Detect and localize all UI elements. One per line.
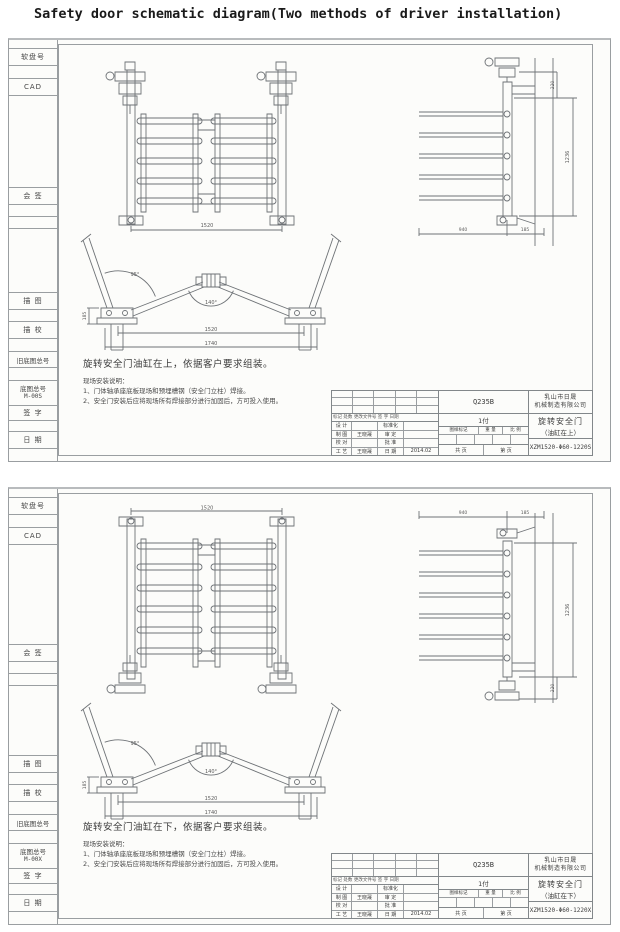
embedded-channel bbox=[535, 513, 553, 703]
bearing-block-right bbox=[285, 308, 325, 324]
note-line: 1、门体轴承座底板现场和预埋槽钢（安全门立柱）焊接。 bbox=[83, 387, 363, 397]
total-pages-label: 共 页 bbox=[439, 445, 484, 455]
dimension-open-width1: 1520 bbox=[118, 795, 304, 805]
base-no-value: M-00S bbox=[24, 393, 42, 401]
sidebar-label-trace: 描 图 bbox=[9, 293, 57, 310]
sidebar-label-trace: 描 图 bbox=[9, 756, 57, 773]
role-date-value: 2014.02 bbox=[404, 448, 438, 456]
dim-side-bottom2: 185 bbox=[521, 510, 530, 516]
dim-side-bottom1: 940 bbox=[459, 510, 468, 516]
stamp-header: 图样标记 重 量 比 例 bbox=[439, 427, 528, 435]
center-latch-blocks bbox=[198, 120, 215, 204]
dimension-side-bottom: 940 185 bbox=[419, 220, 544, 236]
role-draft: 制 图 bbox=[332, 894, 352, 903]
role-check: 校 对 bbox=[332, 439, 352, 448]
front-view-drivers-bottom: 1520 bbox=[89, 505, 324, 700]
sidebar-cell bbox=[9, 368, 57, 381]
sidebar-cell bbox=[9, 773, 57, 785]
dim-side-bottom1: 940 bbox=[459, 227, 468, 233]
quantity-cell: 1付 bbox=[439, 877, 528, 890]
side-view-driver-bottom: 940 185 bbox=[417, 503, 582, 708]
sidebar-cell bbox=[9, 489, 57, 498]
sidebar-cell bbox=[9, 884, 57, 895]
drawing-sheet-cylinder-top: 软盘号 CAD 会 签 描 图 描 校 旧底图总号 底图总号 M-00S 签 字… bbox=[8, 38, 611, 462]
gate-posts bbox=[127, 70, 286, 224]
sidebar-cell bbox=[9, 686, 57, 756]
driver-assembly-right bbox=[258, 655, 296, 693]
revision-grid bbox=[332, 854, 438, 877]
note-title: 旋转安全门油缸在上，依据客户要求组装。 bbox=[83, 356, 363, 370]
dimension-open-height: 185 bbox=[82, 777, 99, 793]
company-line1: 乳山市日晟 bbox=[544, 394, 577, 402]
role-review: 审 定 bbox=[378, 431, 404, 440]
sidebar-label-sign: 签 字 bbox=[9, 406, 57, 421]
sidebar-label-trace-check: 描 校 bbox=[9, 322, 57, 339]
dim-open-width1: 1520 bbox=[205, 327, 218, 333]
sidebar-label-countersign: 会 签 bbox=[9, 188, 57, 205]
dim-front-width: 1520 bbox=[201, 506, 214, 512]
sidebar-cell bbox=[9, 339, 57, 352]
base-no-value: M-00X bbox=[24, 856, 42, 864]
role-date-value: 2014.02 bbox=[404, 911, 438, 919]
gate-panel-right bbox=[211, 539, 276, 667]
dimension-open-width1: 1520 bbox=[118, 326, 304, 336]
center-hub bbox=[196, 274, 226, 287]
role-design: 设 计 bbox=[332, 885, 352, 894]
page-title: Safety door schematic diagram(Two method… bbox=[34, 6, 562, 22]
role-process: 工 艺 bbox=[332, 448, 352, 456]
role-standardization: 标准化 bbox=[378, 422, 404, 431]
top-bearing-side bbox=[497, 527, 535, 538]
company-line1: 乳山市日晟 bbox=[544, 857, 577, 865]
title-block-left: 标记 处数 更改文件号 签 字 日期 设 计 标准化 制 图 王晓晟 审 定 校… bbox=[332, 854, 439, 918]
sidebar-cell bbox=[9, 40, 57, 49]
product-line2: （油缸在下） bbox=[541, 890, 580, 900]
role-draft: 制 图 bbox=[332, 431, 352, 440]
total-pages-label: 共 页 bbox=[439, 908, 484, 918]
role-cell bbox=[404, 422, 438, 431]
dimension-front-width: 1520 bbox=[131, 506, 282, 516]
sidebar-cell bbox=[9, 310, 57, 322]
sidebar-cell bbox=[9, 674, 57, 686]
angle-center-label: 140° bbox=[205, 769, 218, 775]
role-cell bbox=[352, 422, 378, 431]
sidebar-label-date: 日 期 bbox=[9, 895, 57, 912]
dim-side-height: 1236 bbox=[565, 604, 571, 617]
sidebar-label-old-base-no: 旧底图总号 bbox=[9, 815, 57, 831]
role-process-name: 王晓晟 bbox=[352, 448, 378, 456]
title-block-middle: Q235B 1付 图样标记 重 量 比 例 共 页 第 页 bbox=[439, 854, 529, 918]
bottom-bearing-side bbox=[497, 216, 535, 225]
bar-stubs bbox=[419, 111, 510, 201]
stamp-label: 图样标记 bbox=[439, 890, 479, 897]
stamp-area: 图样标记 重 量 比 例 bbox=[439, 427, 528, 445]
role-approve: 批 准 bbox=[378, 439, 404, 448]
pages-row: 共 页 第 页 bbox=[439, 445, 528, 455]
role-check: 校 对 bbox=[332, 902, 352, 911]
stamp-boxes bbox=[439, 435, 528, 444]
sidebar-cell bbox=[9, 205, 57, 217]
dim-open-height: 185 bbox=[82, 781, 88, 790]
driver-assembly-right bbox=[257, 62, 296, 114]
dimension-side-bottom-offset: 220 bbox=[519, 677, 557, 699]
stamp-header: 图样标记 重 量 比 例 bbox=[439, 890, 528, 898]
revision-header: 标记 处数 更改文件号 签 字 日期 bbox=[332, 414, 438, 422]
product-line1: 旋转安全门 bbox=[538, 879, 583, 890]
sidebar-cell bbox=[9, 449, 57, 461]
dimension-open-height: 185 bbox=[82, 308, 99, 324]
title-block-left: 标记 处数 更改文件号 签 字 日期 设 计 标准化 制 图 王晓晟 审 定 校… bbox=[332, 391, 439, 455]
scale-label: 比 例 bbox=[503, 427, 528, 434]
sidebar-label-old-base-no: 旧底图总号 bbox=[9, 352, 57, 368]
product-line1: 旋转安全门 bbox=[538, 416, 583, 427]
base-no-label: 底图总号 bbox=[20, 848, 46, 857]
quantity-cell: 1付 bbox=[439, 414, 528, 427]
company-name: 乳山市日晟 机械制造有限公司 bbox=[529, 391, 592, 414]
role-standardization: 标准化 bbox=[378, 885, 404, 894]
note-line: 2、安全门安装后应将现场所有焊接部分进行加固后，方可投入使用。 bbox=[83, 397, 363, 407]
dim-side-height: 1236 bbox=[565, 151, 571, 164]
driver-assembly-left bbox=[106, 62, 145, 114]
note-title: 旋转安全门油缸在下，依据客户要求组装。 bbox=[83, 819, 363, 833]
sidebar-cell bbox=[9, 229, 57, 293]
post-side bbox=[503, 82, 535, 216]
role-design: 设 计 bbox=[332, 422, 352, 431]
sidebar-label-trace-check: 描 校 bbox=[9, 785, 57, 802]
role-cell bbox=[404, 902, 438, 911]
dim-side-top: 220 bbox=[550, 81, 556, 90]
role-cell bbox=[404, 894, 438, 903]
scale-label: 比 例 bbox=[503, 890, 528, 897]
drawing-number: XZM1520-Φ60-1220S bbox=[529, 439, 592, 455]
gate-panel-right bbox=[211, 114, 276, 212]
post-side bbox=[503, 541, 535, 677]
role-review: 审 定 bbox=[378, 894, 404, 903]
dim-side-top: 220 bbox=[550, 684, 556, 693]
bearing-block-left bbox=[97, 308, 137, 324]
stamp-label: 图样标记 bbox=[439, 427, 479, 434]
dim-front-width: 1520 bbox=[201, 223, 214, 229]
sidebar-cell bbox=[9, 662, 57, 674]
driver-assembly-side bbox=[485, 58, 519, 82]
dimension-side-height: 1236 bbox=[514, 98, 577, 216]
role-draft-name: 王晓晟 bbox=[352, 894, 378, 903]
dimension-side-height: 1236 bbox=[514, 543, 577, 677]
role-date: 日 期 bbox=[378, 448, 404, 456]
role-draft-name: 王晓晟 bbox=[352, 431, 378, 440]
sidebar-base-no: 底图总号 M-00X bbox=[9, 844, 57, 869]
pages-row: 共 页 第 页 bbox=[439, 908, 528, 918]
role-date: 日 期 bbox=[378, 911, 404, 919]
center-latch-blocks bbox=[198, 545, 215, 661]
sidebar-cell bbox=[9, 515, 57, 528]
weight-label: 重 量 bbox=[479, 890, 503, 897]
sidebar-cell bbox=[9, 421, 57, 432]
sidebar-cell bbox=[9, 217, 57, 229]
product-line2: （油缸在上） bbox=[541, 427, 580, 437]
angle-open-label: 95° bbox=[131, 272, 140, 278]
title-block-middle: Q235B 1付 图样标记 重 量 比 例 共 页 第 页 bbox=[439, 391, 529, 455]
role-cell bbox=[352, 439, 378, 448]
sidebar-label-disk-no: 软盘号 bbox=[9, 498, 57, 515]
center-hub bbox=[196, 743, 226, 756]
assembly-notes: 旋转安全门油缸在下，依据客户要求组装。 现场安装说明： 1、门体轴承座底板现场和… bbox=[83, 819, 363, 870]
company-name: 乳山市日晟 机械制造有限公司 bbox=[529, 854, 592, 877]
sidebar: 软盘号 CAD 会 签 描 图 描 校 旧底图总号 底图总号 M-00X 签 字… bbox=[9, 489, 58, 924]
drawing-sheet-cylinder-bottom: 软盘号 CAD 会 签 描 图 描 校 旧底图总号 底图总号 M-00X 签 字… bbox=[8, 487, 611, 925]
title-block: 标记 处数 更改文件号 签 字 日期 设 计 标准化 制 图 王晓晟 审 定 校… bbox=[331, 390, 593, 456]
material-cell: Q235B bbox=[439, 391, 528, 414]
note-heading: 现场安装说明： bbox=[83, 375, 363, 385]
title-block-right: 乳山市日晟 机械制造有限公司 旋转安全门 （油缸在下） XZM1520-Φ60-… bbox=[529, 854, 592, 918]
angle-center-label: 140° bbox=[205, 300, 218, 306]
front-view-drivers-top: 1520 bbox=[89, 54, 324, 234]
gate-panel-left bbox=[137, 114, 202, 212]
stamp-area: 图样标记 重 量 比 例 bbox=[439, 890, 528, 908]
title-block-right: 乳山市日晟 机械制造有限公司 旋转安全门 （油缸在上） XZM1520-Φ60-… bbox=[529, 391, 592, 455]
material-cell: Q235B bbox=[439, 854, 528, 877]
roles-grid: 设 计 标准化 制 图 王晓晟 审 定 校 对 批 准 工 艺 王晓晟 日 期 … bbox=[332, 422, 438, 455]
bearing-block-left bbox=[97, 777, 137, 793]
note-heading: 现场安装说明： bbox=[83, 838, 363, 848]
bearing-block-right bbox=[285, 777, 325, 793]
revision-header: 标记 处数 更改文件号 签 字 日期 bbox=[332, 877, 438, 885]
sidebar-cell bbox=[9, 802, 57, 815]
angle-open-label: 95° bbox=[131, 741, 140, 747]
sidebar-cell bbox=[9, 912, 57, 924]
revision-grid bbox=[332, 391, 438, 414]
sidebar-label-cad: CAD bbox=[9, 79, 57, 96]
sidebar: 软盘号 CAD 会 签 描 图 描 校 旧底图总号 底图总号 M-00S 签 字… bbox=[9, 40, 58, 461]
driver-assembly-side bbox=[485, 677, 519, 700]
base-no-label: 底图总号 bbox=[20, 385, 46, 394]
sidebar-label-sign: 签 字 bbox=[9, 869, 57, 884]
sidebar-base-no: 底图总号 M-00S bbox=[9, 381, 57, 406]
assembly-notes: 旋转安全门油缸在上，依据客户要求组装。 现场安装说明： 1、门体轴承座底板现场和… bbox=[83, 356, 363, 407]
dim-open-width2: 1740 bbox=[205, 810, 218, 816]
page-no-label: 第 页 bbox=[484, 445, 528, 455]
dim-side-bottom2: 185 bbox=[521, 227, 530, 233]
gate-panel-left bbox=[137, 539, 202, 667]
title-block: 标记 处数 更改文件号 签 字 日期 设 计 标准化 制 图 王晓晟 审 定 校… bbox=[331, 853, 593, 919]
note-line: 2、安全门安装后应将现场所有焊接部分进行加固后，方可投入使用。 bbox=[83, 860, 363, 870]
dim-open-width1: 1520 bbox=[205, 796, 218, 802]
role-cell bbox=[404, 885, 438, 894]
top-bearing-blocks bbox=[119, 517, 294, 526]
sidebar-cell bbox=[9, 96, 57, 188]
company-line2: 机械制造有限公司 bbox=[534, 865, 586, 873]
roles-grid: 设 计 标准化 制 图 王晓晟 审 定 校 对 批 准 工 艺 王晓晟 日 期 … bbox=[332, 885, 438, 918]
driver-assembly-left bbox=[107, 655, 145, 693]
role-process: 工 艺 bbox=[332, 911, 352, 919]
sidebar-cell bbox=[9, 545, 57, 645]
stamp-boxes bbox=[439, 898, 528, 907]
plan-view-open-gates: 95° 140° 1520 1740 185 bbox=[71, 701, 351, 823]
product-name: 旋转安全门 （油缸在下） bbox=[529, 877, 592, 902]
drawing-number: XZM1520-Φ60-1220X bbox=[529, 902, 592, 918]
sidebar-cell bbox=[9, 66, 57, 79]
sidebar-label-disk-no: 软盘号 bbox=[9, 49, 57, 66]
role-cell bbox=[352, 885, 378, 894]
dim-open-width2: 1740 bbox=[205, 341, 218, 347]
page-no-label: 第 页 bbox=[484, 908, 528, 918]
role-cell bbox=[404, 431, 438, 440]
role-process-name: 王晓晟 bbox=[352, 911, 378, 919]
sidebar-cell bbox=[9, 831, 57, 844]
role-cell bbox=[352, 902, 378, 911]
sidebar-label-cad: CAD bbox=[9, 528, 57, 545]
dimension-front-width: 1520 bbox=[131, 223, 282, 232]
weight-label: 重 量 bbox=[479, 427, 503, 434]
side-view-driver-top: 1236 220 940 185 bbox=[417, 54, 582, 250]
role-approve: 批 准 bbox=[378, 902, 404, 911]
sidebar-label-countersign: 会 签 bbox=[9, 645, 57, 662]
dimension-side-top: 940 185 bbox=[419, 510, 544, 533]
sidebar-label-date: 日 期 bbox=[9, 432, 57, 449]
company-line2: 机械制造有限公司 bbox=[534, 402, 586, 410]
plan-view-open-gates: 95° 140° 1520 1740 185 bbox=[71, 232, 351, 354]
product-name: 旋转安全门 （油缸在上） bbox=[529, 414, 592, 439]
bar-stubs bbox=[419, 550, 510, 661]
dim-open-height: 185 bbox=[82, 312, 88, 321]
note-line: 1、门体轴承座底板现场和预埋槽钢（安全门立柱）焊接。 bbox=[83, 850, 363, 860]
role-cell bbox=[404, 439, 438, 448]
